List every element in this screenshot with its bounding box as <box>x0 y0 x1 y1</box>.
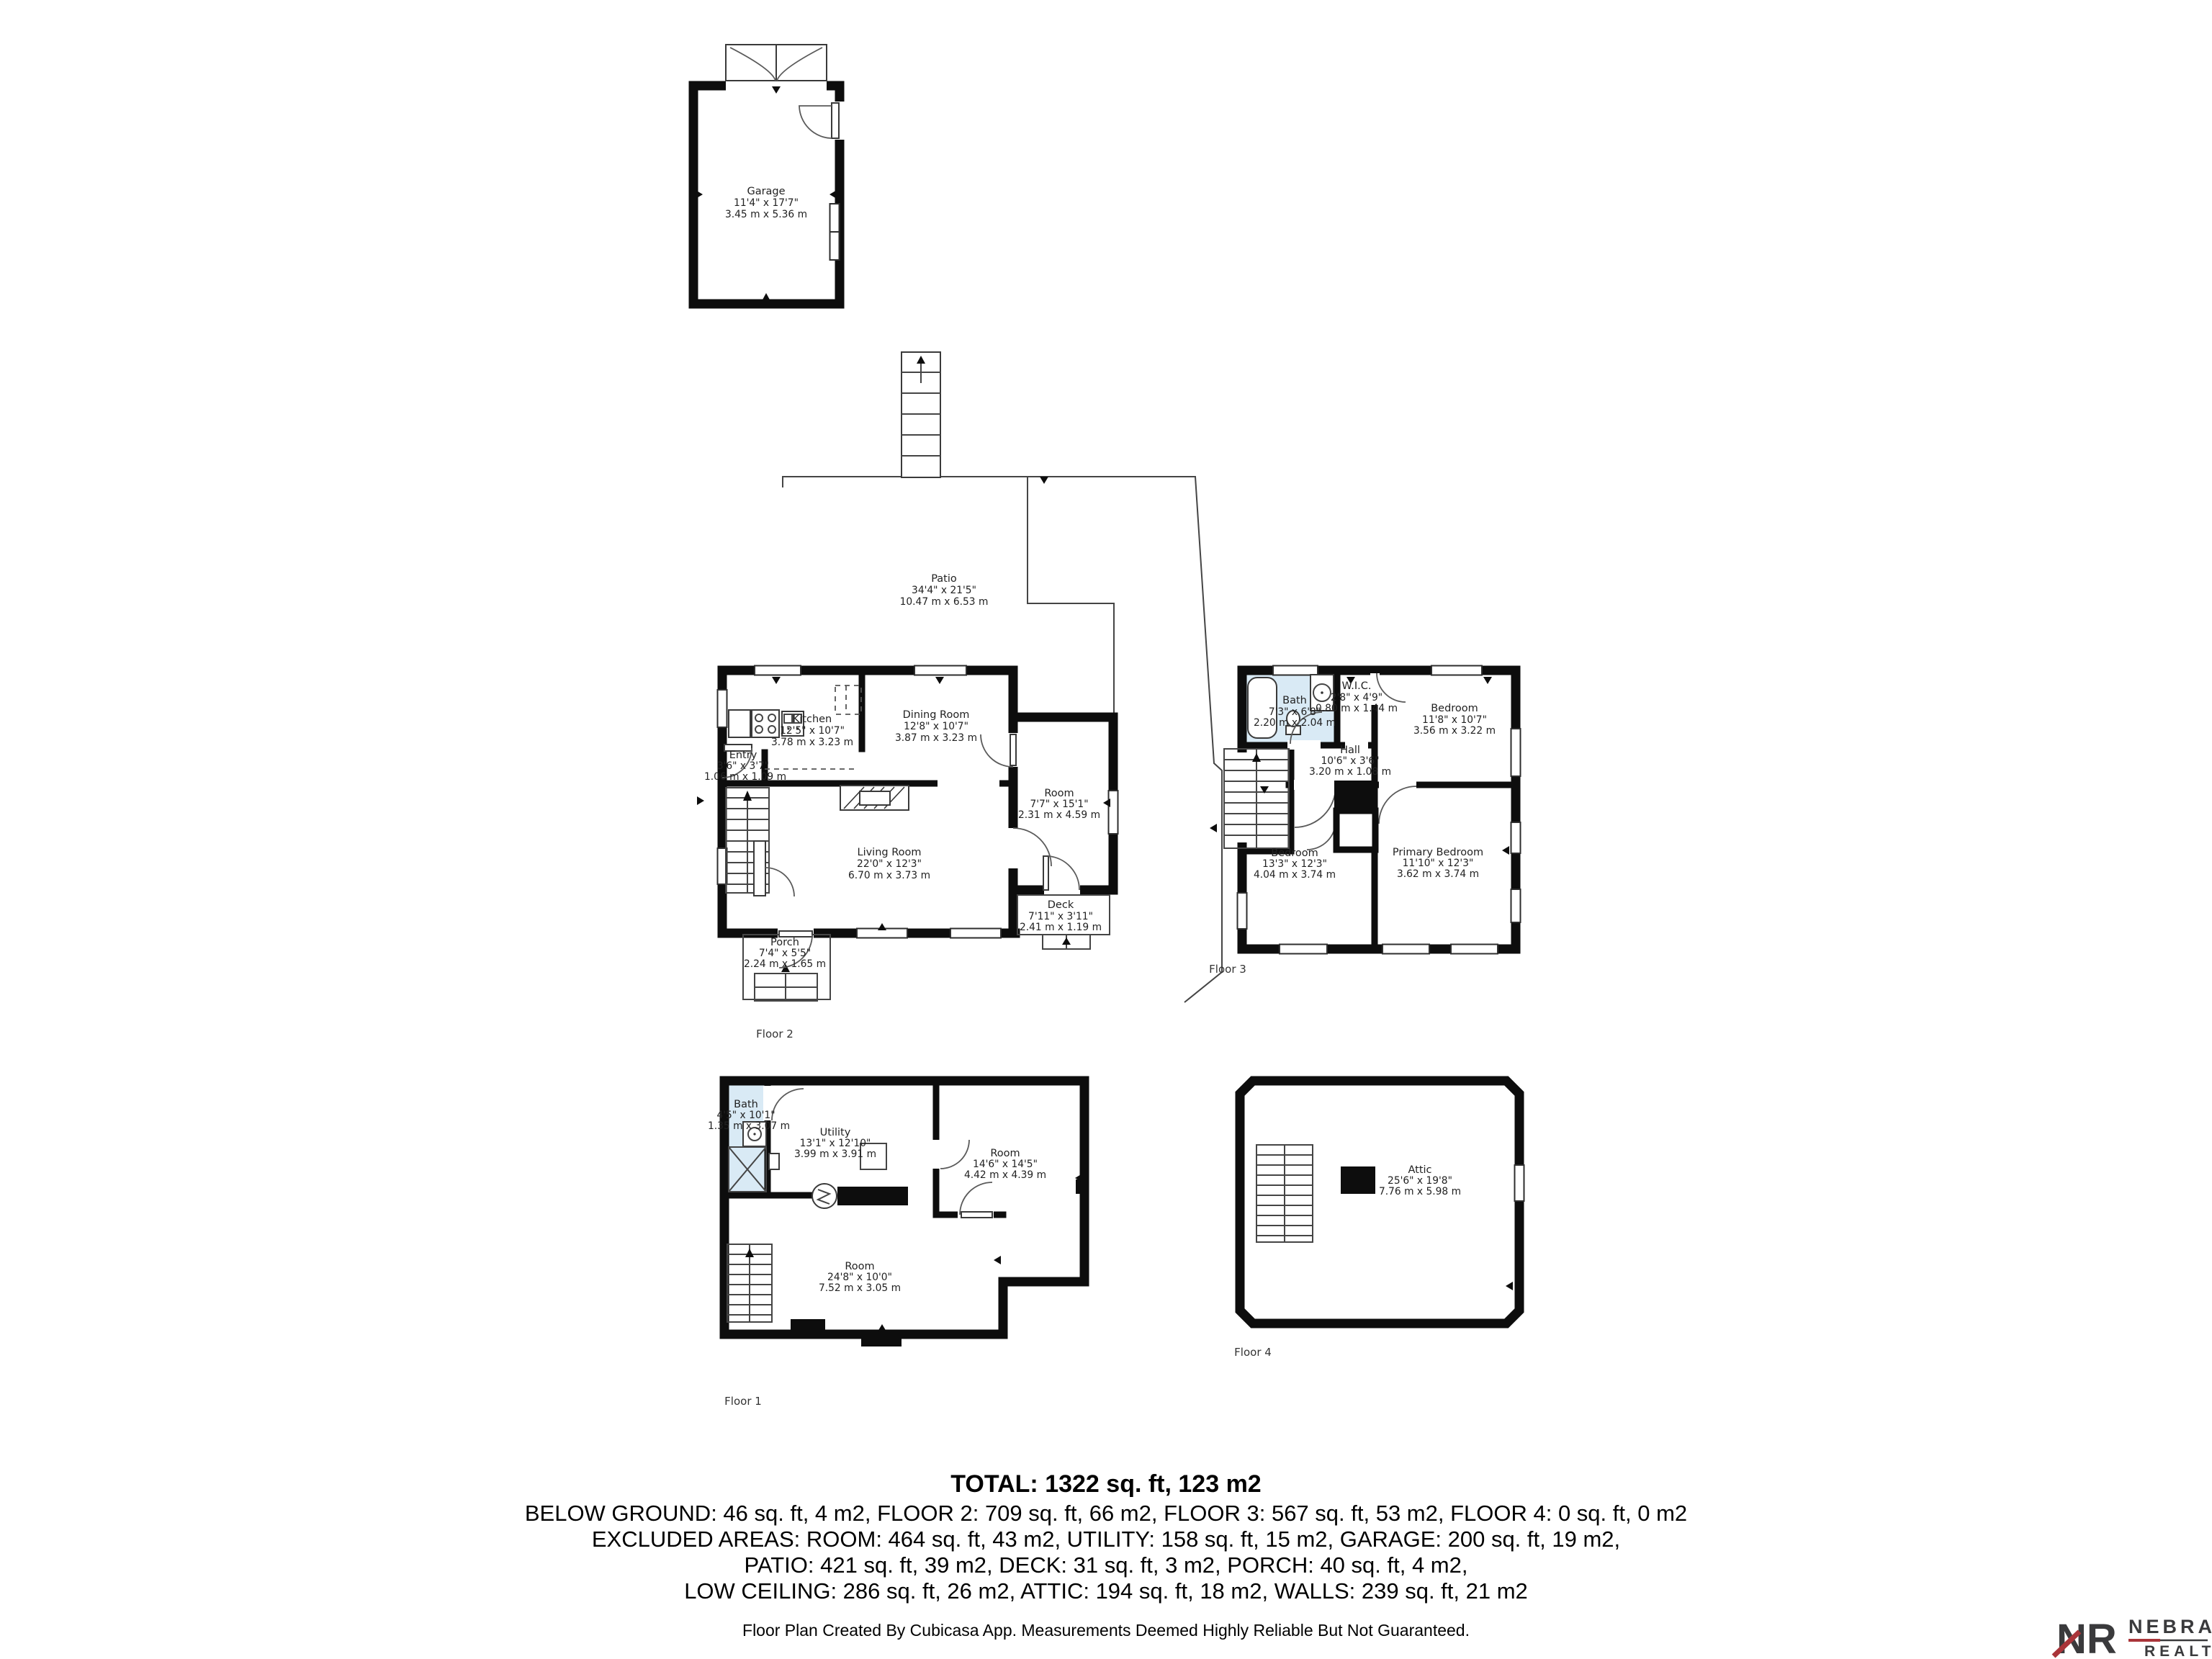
dining-label-name: Dining Room <box>903 709 970 721</box>
hall-label-imperial: 10'6" x 3'6" <box>1321 755 1379 767</box>
fireplace <box>840 786 909 810</box>
living-label-name: Living Room <box>857 847 921 858</box>
attic-label-metric: 7.76 m x 5.98 m <box>1379 1186 1461 1197</box>
garage-label-name: Garage <box>747 186 785 197</box>
patio-label-imperial: 34'4" x 21'5" <box>912 585 976 596</box>
entry-label-imperial: 3'6" x 3'7" <box>717 760 769 772</box>
summary-low-ceiling-line: LOW CEILING: 286 sq. ft, 26 m2, ATTIC: 1… <box>684 1578 1528 1604</box>
floor3-caption: Floor 3 <box>1209 963 1246 976</box>
floor3-plan: Bath 7'3" x 6'8" 2.20 m x 2.04 m W.I.C. … <box>1209 666 1520 976</box>
floor1-room-bottom-label-imperial: 24'8" x 10'0" <box>827 1272 892 1283</box>
floor1-caption: Floor 1 <box>724 1395 762 1408</box>
hall-label-metric: 3.20 m x 1.08 m <box>1309 766 1391 778</box>
area-summary: TOTAL: 1322 sq. ft, 123 m2 BELOW GROUND:… <box>525 1470 1687 1640</box>
floor3-bath-label-name: Bath <box>1282 695 1307 706</box>
floor1-room-right-label-metric: 4.42 m x 4.39 m <box>964 1169 1046 1181</box>
floor1-bath-label-metric: 1.35 m x 3.07 m <box>708 1120 790 1132</box>
wic-label-metric: 0.80 m x 1.44 m <box>1316 703 1398 714</box>
floor3-stairs <box>1224 749 1289 848</box>
kitchen-label-metric: 3.78 m x 3.23 m <box>771 737 853 748</box>
porch-label-name: Porch <box>770 937 799 948</box>
dining-label-imperial: 12'8" x 10'7" <box>904 721 968 732</box>
summary-below-ground: BELOW GROUND: 46 sq. ft, 4 m2, FLOOR 2: … <box>525 1501 1687 1526</box>
bedroom-top-label-metric: 3.56 m x 3.22 m <box>1413 725 1496 737</box>
summary-patio-line: PATIO: 421 sq. ft, 39 m2, DECK: 31 sq. f… <box>744 1552 1467 1578</box>
floor2-caption: Floor 2 <box>756 1028 793 1040</box>
floor2-room-label-name: Room <box>1044 788 1074 799</box>
deck-label-name: Deck <box>1048 899 1074 911</box>
entry-label-metric: 1.06 m x 1.09 m <box>704 771 786 783</box>
garage-label-imperial: 11'4" x 17'7" <box>734 197 799 209</box>
floor4-stairs <box>1256 1145 1313 1242</box>
floor1-bath-label-imperial: 4'5" x 10'1" <box>716 1110 775 1121</box>
logo-monogram: NR <box>2056 1616 2117 1659</box>
dining-label-metric: 3.87 m x 3.23 m <box>895 732 977 744</box>
patio-label-metric: 10.47 m x 6.53 m <box>900 596 989 608</box>
hall-label-name: Hall <box>1340 745 1360 756</box>
summary-total: TOTAL: 1322 sq. ft, 123 m2 <box>950 1470 1261 1498</box>
bedroom-top-label-imperial: 11'8" x 10'7" <box>1422 714 1487 726</box>
utility-label-metric: 3.99 m x 3.91 m <box>794 1148 876 1160</box>
floor-plan-svg: Garage 11'4" x 17'7" 3.45 m x 5.36 m Pat… <box>0 0 2212 1659</box>
floor1-stairs <box>727 1244 772 1322</box>
porch-label-imperial: 7'4" x 5'5" <box>759 948 811 959</box>
attic-label-name: Attic <box>1408 1164 1431 1176</box>
floor1-room-right-label-name: Room <box>990 1148 1020 1159</box>
floor2-room-label-imperial: 7'7" x 15'1" <box>1030 799 1088 810</box>
footer-disclaimer: Floor Plan Created By Cubicasa App. Meas… <box>742 1621 1470 1640</box>
attic-label-imperial: 25'6" x 19'8" <box>1388 1175 1452 1187</box>
living-label-metric: 6.70 m x 3.73 m <box>848 870 930 881</box>
entry-label-name: Entry <box>729 750 757 761</box>
floor3-bedroom-label-metric: 4.04 m x 3.74 m <box>1254 869 1336 881</box>
utility-label-imperial: 13'1" x 12'10" <box>800 1138 871 1149</box>
nebraska-realty-logo: NR NEBRASKA REALTY <box>2054 1616 2212 1659</box>
porch-label-metric: 2.24 m x 1.65 m <box>744 958 826 970</box>
garage-label-metric: 3.45 m x 5.36 m <box>725 209 807 220</box>
bedroom-top-label-name: Bedroom <box>1431 703 1478 714</box>
deck-label-metric: 2.41 m x 1.19 m <box>1020 922 1102 933</box>
primary-bedroom-label-imperial: 11'10" x 12'3" <box>1403 858 1474 869</box>
floor1-room-bottom-label-metric: 7.52 m x 3.05 m <box>819 1282 901 1294</box>
floor4-plan: Attic 25'6" x 19'8" 7.76 m x 5.98 m Floo… <box>1234 1081 1524 1359</box>
floor2-plan: Kitchen 12'5" x 10'7" 3.78 m x 3.23 m Di… <box>697 666 1118 1041</box>
floor1-bath-label-name: Bath <box>734 1099 758 1110</box>
living-label-imperial: 22'0" x 12'3" <box>857 858 922 870</box>
floor-plan-page: Garage 11'4" x 17'7" 3.45 m x 5.36 m Pat… <box>0 0 2212 1659</box>
deck-label-imperial: 7'11" x 3'11" <box>1028 911 1093 922</box>
kitchen-label-name: Kitchen <box>793 714 832 725</box>
primary-bedroom-label-metric: 3.62 m x 3.74 m <box>1397 868 1479 880</box>
floor1-room-right-label-imperial: 14'6" x 14'5" <box>973 1159 1038 1170</box>
floor3-bedroom-label-name: Bedroom <box>1271 848 1318 859</box>
logo-brand-text: NEBRASKA <box>2128 1616 2212 1637</box>
utility-label-name: Utility <box>820 1127 851 1138</box>
summary-excluded-areas: EXCLUDED AREAS: ROOM: 464 sq. ft, 43 m2,… <box>592 1527 1620 1552</box>
floor4-caption: Floor 4 <box>1234 1346 1272 1359</box>
floor3-bath-label-imperial: 7'3" x 6'8" <box>1269 706 1321 718</box>
floor2-room-label-metric: 2.31 m x 4.59 m <box>1018 809 1100 821</box>
floor3-bedroom-label-imperial: 13'3" x 12'3" <box>1262 858 1327 870</box>
primary-bedroom-label-name: Primary Bedroom <box>1393 847 1483 858</box>
patio-label-name: Patio <box>931 573 957 585</box>
wic-label-name: W.I.C. <box>1342 680 1372 692</box>
patio-outline: Patio 34'4" x 21'5" 10.47 m x 6.53 m <box>783 352 1222 1002</box>
kitchen-label-imperial: 12'5" x 10'7" <box>780 725 845 737</box>
floor3-bath-label-metric: 2.20 m x 2.04 m <box>1254 717 1336 729</box>
floor1-plan: Bath 4'5" x 10'1" 1.35 m x 3.07 m Utilit… <box>708 1081 1084 1408</box>
logo-sub-text: REALTY <box>2144 1643 2212 1659</box>
wic-label-imperial: 2'8" x 4'9" <box>1331 692 1382 703</box>
floor1-room-bottom-label-name: Room <box>845 1261 874 1272</box>
garage-plan: Garage 11'4" x 17'7" 3.45 m x 5.36 m <box>693 45 845 304</box>
